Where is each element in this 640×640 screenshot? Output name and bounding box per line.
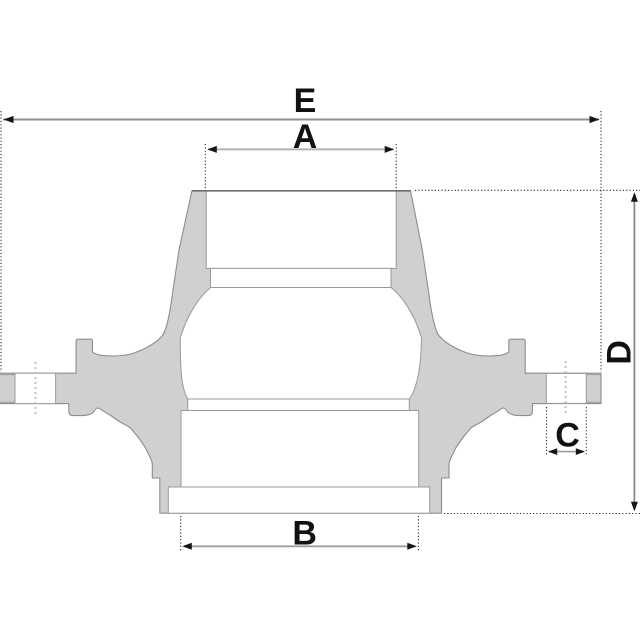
svg-text:E: E — [294, 82, 317, 120]
svg-text:D: D — [601, 340, 639, 365]
svg-text:C: C — [555, 416, 580, 454]
svg-text:B: B — [292, 515, 317, 553]
svg-text:A: A — [293, 118, 318, 156]
